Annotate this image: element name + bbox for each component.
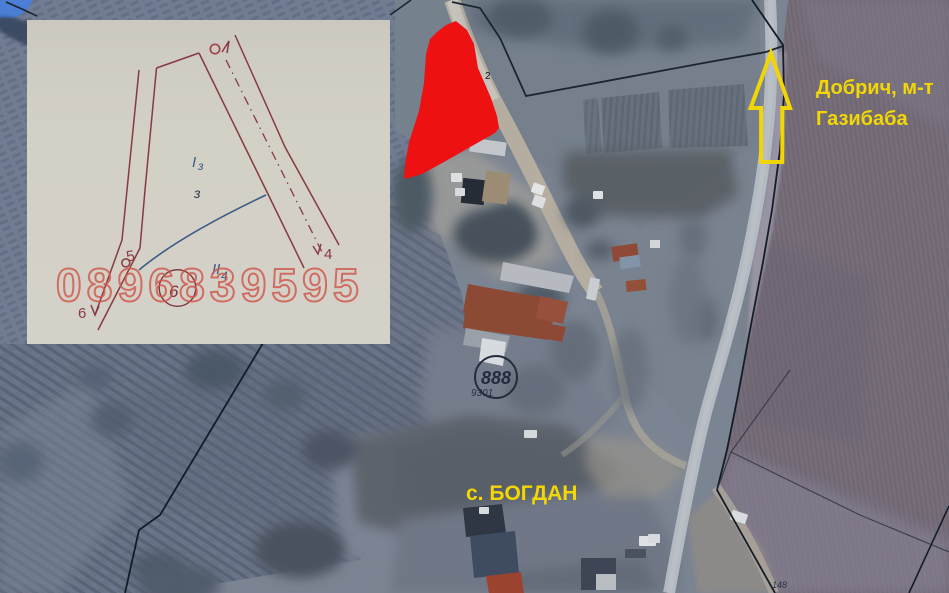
svg-text:Добрич, м-т: Добрич, м-т <box>816 77 934 99</box>
svg-text:9301: 9301 <box>471 388 493 399</box>
svg-text:Газибаба: Газибаба <box>816 108 909 130</box>
svg-text:I: I <box>192 154 196 171</box>
svg-text:з: з <box>193 185 201 201</box>
svg-text:2: 2 <box>485 71 491 82</box>
svg-text:з: з <box>197 159 204 173</box>
svg-text:с. БОГДАН: с. БОГДАН <box>466 482 577 505</box>
svg-text:0896839595: 0896839595 <box>56 259 364 311</box>
svg-text:148: 148 <box>772 580 787 590</box>
svg-text:888: 888 <box>481 368 511 388</box>
